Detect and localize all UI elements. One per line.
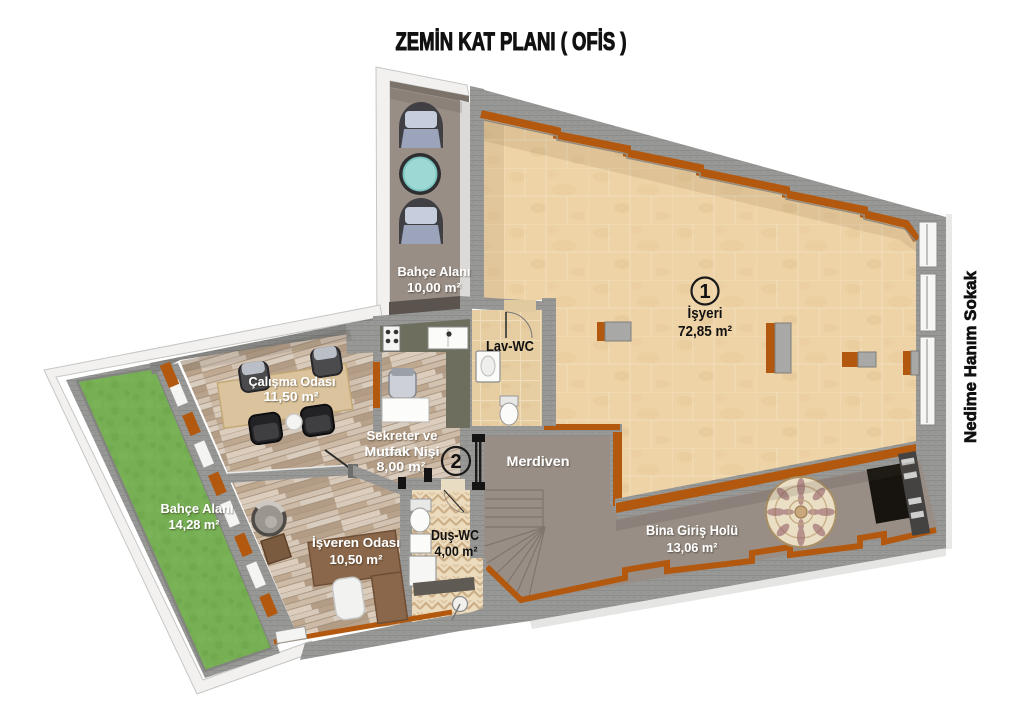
svg-text:8,00 m²: 8,00 m² (377, 459, 427, 474)
svg-text:Mutfak Nişi: Mutfak Nişi (365, 444, 440, 459)
svg-text:1: 1 (699, 281, 710, 303)
svg-text:ZEMİN KAT PLANI ( OFİS ): ZEMİN KAT PLANI ( OFİS ) (396, 28, 627, 56)
svg-text:Lav-WC: Lav-WC (486, 338, 534, 355)
svg-text:13,06 m²: 13,06 m² (667, 540, 719, 555)
svg-text:Çalışma Odası: Çalışma Odası (249, 374, 336, 389)
svg-text:Bina Giriş Holü: Bina Giriş Holü (646, 522, 738, 538)
svg-text:Nedime Hanım Sokak: Nedime Hanım Sokak (961, 270, 980, 443)
svg-text:14,28 m²: 14,28 m² (169, 517, 221, 532)
svg-text:Sekreter ve: Sekreter ve (367, 428, 438, 443)
svg-text:İşveren Odası: İşveren Odası (312, 535, 400, 550)
svg-text:2: 2 (450, 451, 461, 473)
svg-text:11,50 m²: 11,50 m² (264, 389, 320, 404)
svg-text:Duş-WC: Duş-WC (431, 527, 479, 544)
svg-text:Bahçe Alanı: Bahçe Alanı (161, 501, 234, 516)
svg-text:Merdiven: Merdiven (507, 453, 570, 469)
svg-text:4,00 m²: 4,00 m² (435, 543, 478, 559)
svg-text:Bahçe Alanı: Bahçe Alanı (398, 264, 471, 279)
svg-text:72,85 m²: 72,85 m² (678, 323, 732, 340)
svg-text:10,00 m²: 10,00 m² (407, 280, 462, 295)
svg-text:İşyeri: İşyeri (688, 305, 723, 322)
svg-text:10,50 m²: 10,50 m² (330, 552, 384, 567)
